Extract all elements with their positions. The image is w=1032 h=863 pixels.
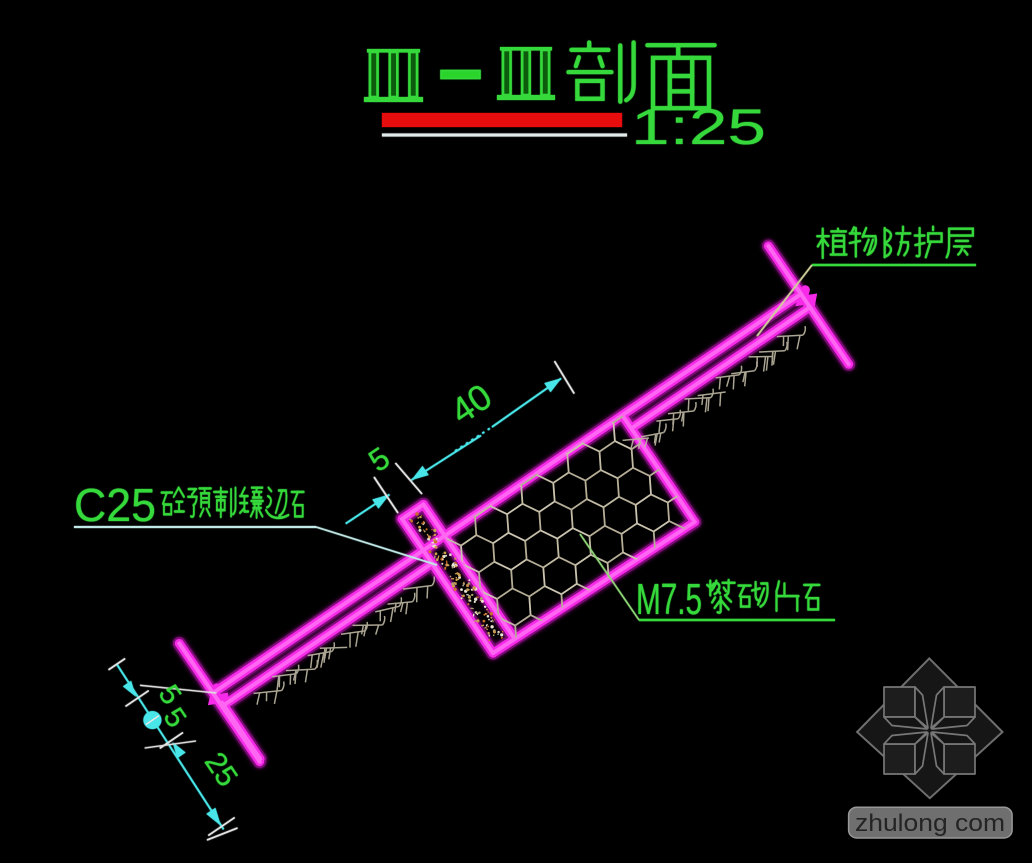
svg-text:1:25: 1:25 (631, 99, 766, 155)
svg-text:C25: C25 (74, 479, 156, 531)
svg-text:zhulong com: zhulong com (855, 810, 1005, 837)
svg-text:M7.5: M7.5 (636, 575, 702, 624)
